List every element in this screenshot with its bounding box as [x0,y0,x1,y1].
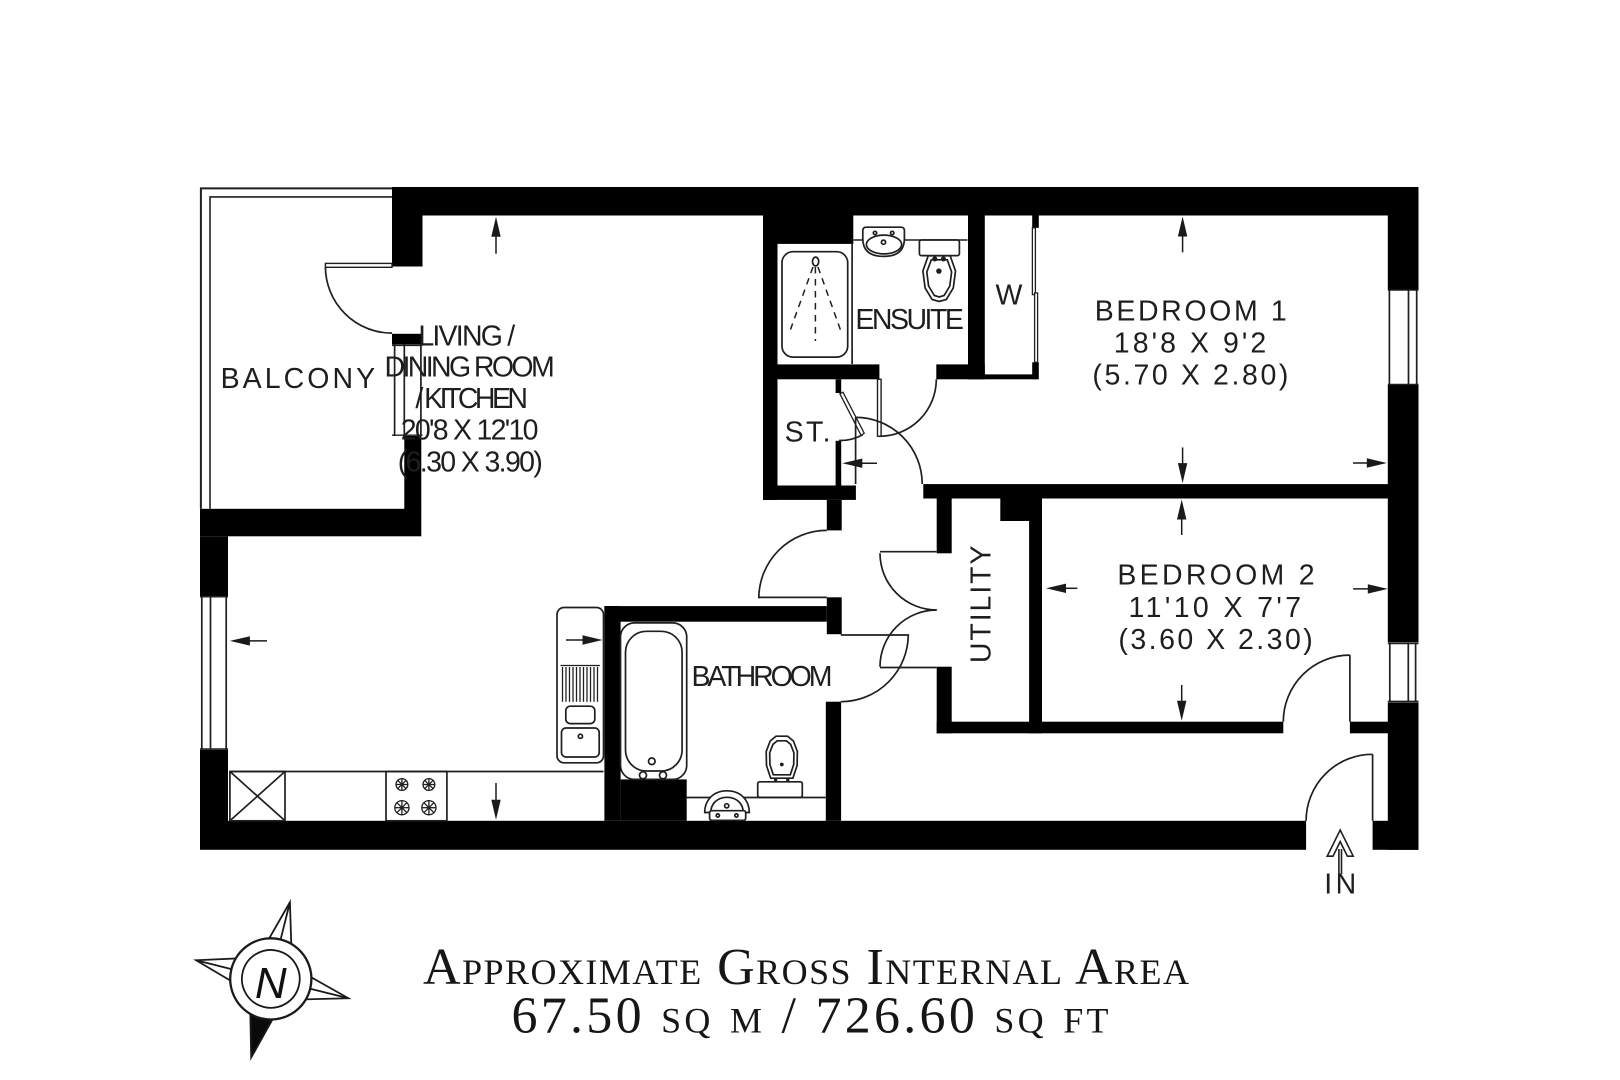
svg-text:ENSUITE: ENSUITE [855,304,963,336]
svg-text:W: W [995,280,1022,312]
svg-text:(6.30 X 3.90): (6.30 X 3.90) [398,446,543,478]
svg-text:LIVING /: LIVING / [418,320,515,352]
svg-text:DINING ROOM: DINING ROOM [385,352,555,384]
svg-text:20'8 X 12'10: 20'8 X 12'10 [401,415,539,447]
svg-text:18'8 X 9'2: 18'8 X 9'2 [1114,328,1266,360]
svg-text:BALCONY: BALCONY [221,363,379,395]
svg-text:BATHROOM: BATHROOM [692,661,833,693]
svg-text:N: N [255,959,287,1008]
svg-text:ST.: ST. [785,417,831,449]
svg-text:/ KITCHEN: / KITCHEN [415,383,528,415]
svg-text:IN: IN [1324,868,1356,900]
svg-text:67.50 sq m / 726.60 sq ft: 67.50 sq m / 726.60 sq ft [512,987,1109,1044]
svg-text:UTILITY: UTILITY [965,546,997,664]
